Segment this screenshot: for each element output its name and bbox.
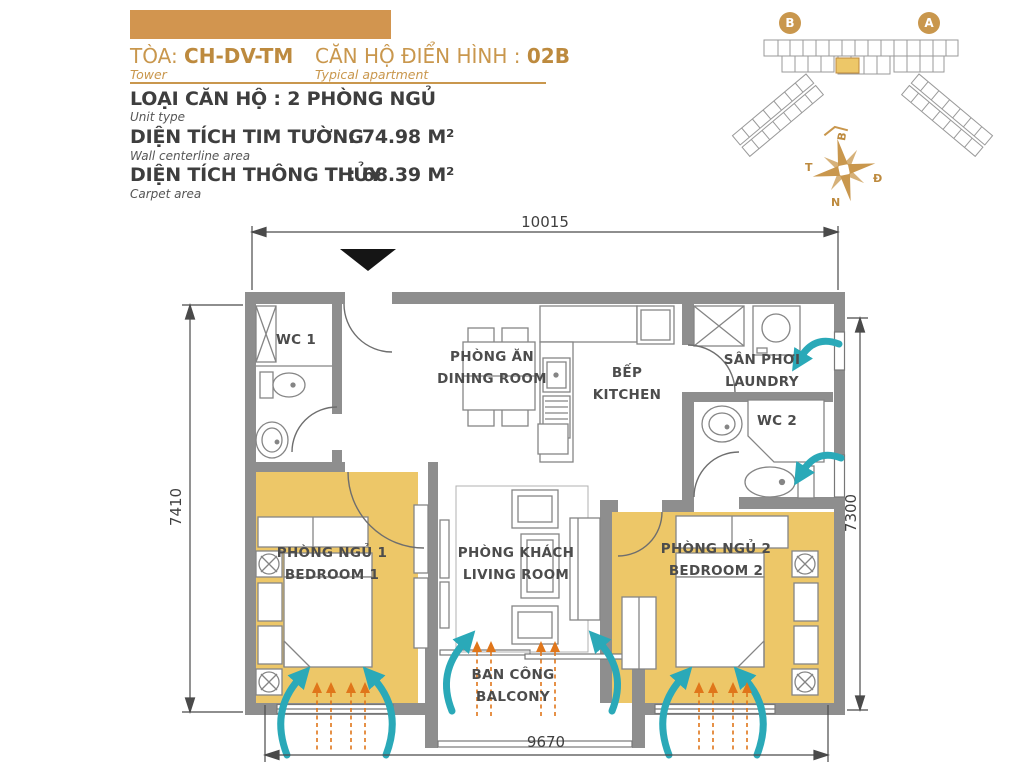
room-label-living: PHÒNG KHÁCHLIVING ROOM — [426, 543, 606, 586]
floorplan-page: { "header": { "tower_label": "TÒA:", "to… — [0, 0, 1024, 771]
dimension-right: 7300 — [842, 468, 860, 558]
washing-machine — [753, 306, 800, 355]
room-label-bedroom1: PHÒNG NGỦ 1BEDROOM 1 — [242, 543, 422, 586]
room-label-wc2: WC 2 — [687, 411, 867, 433]
dimension-bottom: 9670 — [501, 733, 591, 751]
compass-rose — [804, 120, 882, 208]
entrance-marker — [340, 249, 396, 271]
room-label-wc1: WC 1 — [206, 330, 386, 352]
key-plan-highlighted-unit — [836, 58, 859, 73]
wc1-door — [292, 407, 337, 452]
living-furniture — [440, 424, 600, 652]
room-label-balcony: BAN CÔNGBALCONY — [423, 665, 603, 708]
room-label-bedroom2: PHÒNG NGỦ 2BEDROOM 2 — [626, 539, 806, 582]
dimension-top: 10015 — [500, 213, 590, 231]
dimension-left: 7410 — [167, 462, 185, 552]
key-plan — [732, 40, 992, 156]
wc1-toilet — [260, 372, 273, 398]
wc2-door — [694, 452, 739, 497]
room-label-laundry: SÂN PHƠILAUNDRY — [672, 350, 852, 393]
